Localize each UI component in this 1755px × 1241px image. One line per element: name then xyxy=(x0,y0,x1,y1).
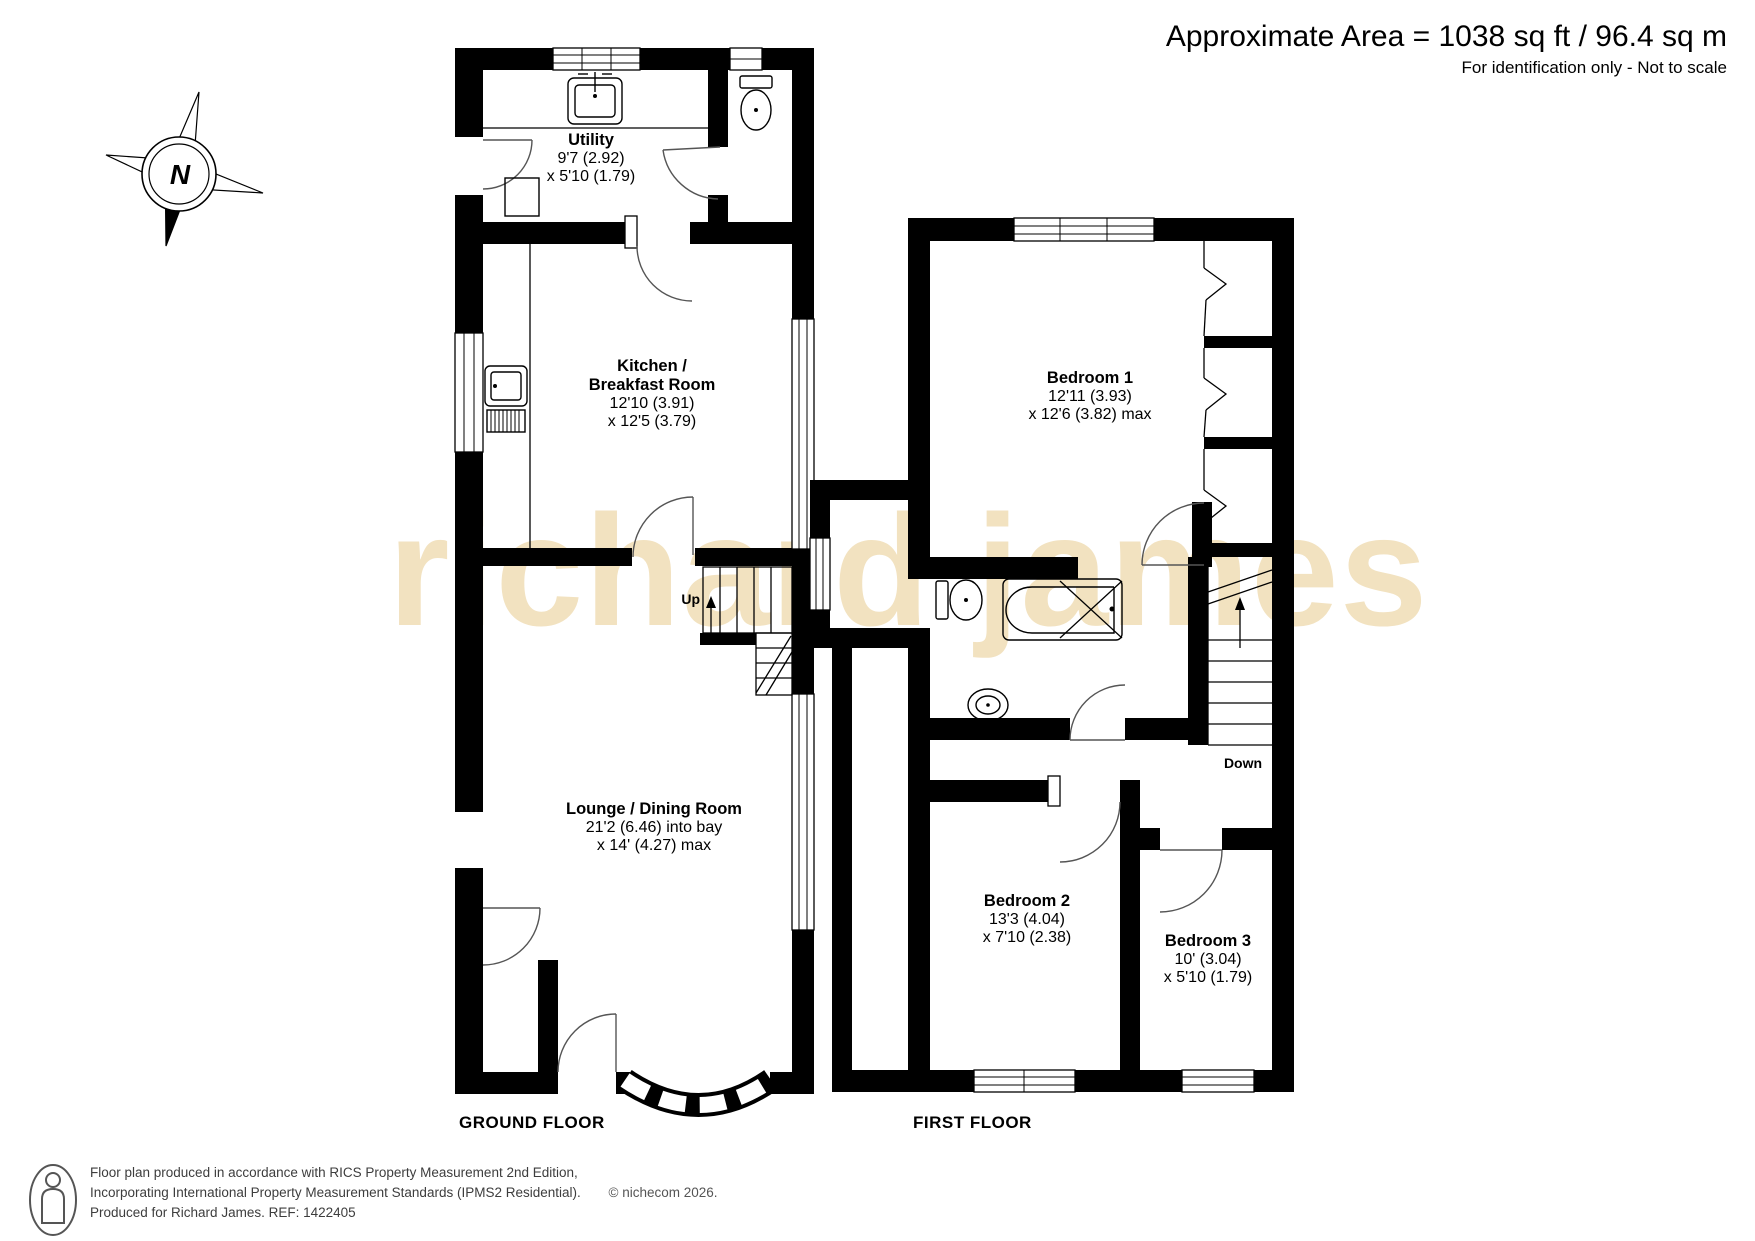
room-labels: Utility 9'7 (2.92) x 5'10 (1.79) Kitchen… xyxy=(547,131,1262,986)
utility-dim1: 9'7 (2.92) xyxy=(557,150,624,167)
footer-line3: Produced for Richard James. REF: 1422405 xyxy=(90,1203,718,1223)
bedroom3-label: Bedroom 3 xyxy=(1165,932,1251,950)
first-floor-title: FIRST FLOOR xyxy=(913,1113,1032,1132)
lounge-dim1: 21'2 (6.46) into bay xyxy=(586,819,722,836)
ground-floor-windows xyxy=(455,48,814,1105)
compass-rose-icon: N xyxy=(106,92,263,246)
utility-dim2: x 5'10 (1.79) xyxy=(547,168,635,185)
wc-window-icon xyxy=(730,48,762,70)
nichecom-credit: © nichecom 2026. xyxy=(609,1185,718,1200)
bathroom-bathtub-icon xyxy=(1003,579,1122,640)
utility-label: Utility xyxy=(568,131,615,149)
bedroom2-label: Bedroom 2 xyxy=(984,892,1070,910)
utility-sink-icon xyxy=(568,72,622,124)
lounge-label: Lounge / Dining Room xyxy=(566,800,742,818)
ground-floor-title: GROUND FLOOR xyxy=(459,1113,605,1132)
footer-text: Floor plan produced in accordance with R… xyxy=(90,1163,718,1223)
kitchen-dim2: x 12'5 (3.79) xyxy=(608,413,696,430)
first-floor-fixtures xyxy=(936,579,1122,721)
stairs-up-label: Up xyxy=(681,591,700,607)
utility-external-door-icon xyxy=(483,140,532,189)
footer-line2: Incorporating International Property Mea… xyxy=(90,1185,581,1200)
bedroom2-door-icon xyxy=(1048,776,1120,862)
wc-toilet-icon xyxy=(740,76,772,130)
bay-window-icon xyxy=(625,1080,771,1105)
bedroom3-dim2: x 5'10 (1.79) xyxy=(1164,969,1252,986)
bedroom1-dim1: 12'11 (3.93) xyxy=(1048,388,1132,405)
utility-appliance-icon xyxy=(505,178,539,216)
first-floor-stairs-icon xyxy=(1208,567,1272,745)
kitchen-lounge-door-icon xyxy=(633,497,693,557)
bathroom-basin-icon xyxy=(968,689,1008,721)
wc-door-icon xyxy=(663,147,720,199)
lounge-side-window-icon xyxy=(792,694,814,930)
lounge-hall-door-icon xyxy=(483,908,540,965)
bathroom-toilet-icon xyxy=(936,580,982,620)
floorplan-canvas: N xyxy=(0,0,1755,1241)
kitchen-window-icon xyxy=(455,333,483,452)
ground-floor-walls xyxy=(455,48,814,1094)
header: Approximate Area = 1038 sq ft / 96.4 sq … xyxy=(1166,20,1727,79)
kitchen-dim1: 12'10 (3.91) xyxy=(610,395,695,412)
lounge-dim2: x 14' (4.27) max xyxy=(597,837,711,854)
bedroom3-dim1: 10' (3.04) xyxy=(1174,951,1241,968)
kitchen-label-line2: Breakfast Room xyxy=(589,376,716,394)
bedroom2-window-icon xyxy=(974,1070,1075,1092)
footer: Floor plan produced in accordance with R… xyxy=(28,1163,718,1237)
kitchen-sink-icon xyxy=(485,366,527,432)
bedroom2-dim2: x 7'10 (2.38) xyxy=(983,929,1071,946)
footer-line2-row: Incorporating International Property Mea… xyxy=(90,1183,718,1203)
kitchen-label-line1: Kitchen / xyxy=(617,357,687,375)
front-door-icon xyxy=(558,1014,616,1072)
approximate-area-text: Approximate Area = 1038 sq ft / 96.4 sq … xyxy=(1166,20,1727,54)
utility-kitchen-door-icon xyxy=(625,216,692,301)
bathroom-door-icon xyxy=(1070,685,1125,740)
person-icon xyxy=(28,1163,78,1237)
bedroom1-label: Bedroom 1 xyxy=(1047,369,1133,387)
bedroom1-dim2: x 12'6 (3.82) max xyxy=(1028,406,1151,423)
ground-stairs-icon xyxy=(703,567,792,695)
bedroom3-door-icon xyxy=(1160,850,1222,912)
compass-north-label: N xyxy=(170,159,191,190)
bedroom1-wardrobe-icon xyxy=(1204,241,1226,543)
bedroom1-window-icon xyxy=(1014,218,1154,241)
landing-window-icon xyxy=(810,538,830,610)
bedroom2-dim1: 13'3 (4.04) xyxy=(989,911,1065,928)
utility-window-icon xyxy=(553,48,640,70)
identification-note-text: For identification only - Not to scale xyxy=(1166,57,1727,79)
bedroom3-window-icon xyxy=(1182,1070,1254,1092)
stairs-down-label: Down xyxy=(1224,755,1262,771)
footer-line1: Floor plan produced in accordance with R… xyxy=(90,1163,718,1183)
